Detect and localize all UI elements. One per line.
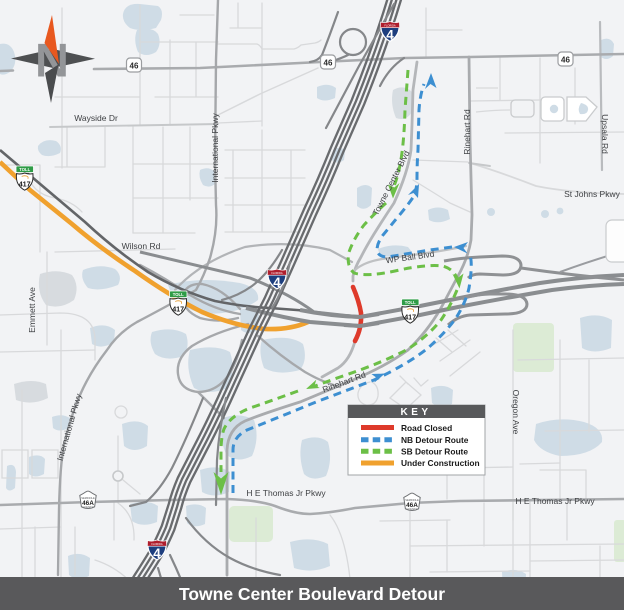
svg-text:TOLL: TOLL [173, 292, 184, 297]
svg-text:SB Detour Route: SB Detour Route [401, 447, 468, 457]
svg-text:Road Closed: Road Closed [401, 423, 452, 433]
svg-text:H E Thomas Jr Pkwy: H E Thomas Jr Pkwy [515, 496, 595, 506]
svg-text:Wilson Rd: Wilson Rd [122, 241, 161, 251]
svg-text:Wayside Dr: Wayside Dr [74, 113, 118, 123]
svg-text:4: 4 [153, 546, 161, 561]
svg-text:46: 46 [561, 56, 570, 65]
svg-text:International Pkwy: International Pkwy [210, 113, 220, 183]
svg-text:Under Construction: Under Construction [401, 458, 480, 468]
svg-text:TOLL: TOLL [405, 300, 416, 305]
svg-text:46: 46 [130, 62, 139, 71]
svg-text:4: 4 [386, 27, 394, 42]
svg-text:KEY: KEY [400, 407, 431, 418]
svg-text:NB Detour Route: NB Detour Route [401, 435, 469, 445]
svg-text:Upsala Rd: Upsala Rd [600, 114, 610, 154]
svg-text:417: 417 [172, 305, 184, 314]
svg-text:TOLL: TOLL [19, 167, 30, 172]
svg-text:Emmett Ave: Emmett Ave [27, 287, 37, 333]
svg-text:46: 46 [324, 59, 333, 68]
svg-text:COUNTY: COUNTY [83, 505, 94, 509]
svg-text:St Johns Pkwy: St Johns Pkwy [564, 189, 620, 199]
svg-text:4: 4 [273, 275, 281, 290]
svg-text:Towne Center Boulevard Detour: Towne Center Boulevard Detour [179, 584, 445, 604]
svg-text:COUNTY: COUNTY [407, 507, 418, 511]
svg-text:H E Thomas Jr Pkwy: H E Thomas Jr Pkwy [246, 488, 326, 498]
svg-text:417: 417 [404, 313, 416, 322]
svg-text:Rinehart Rd: Rinehart Rd [462, 109, 472, 155]
svg-text:Oregon Ave: Oregon Ave [511, 390, 521, 435]
svg-text:417: 417 [19, 180, 31, 189]
